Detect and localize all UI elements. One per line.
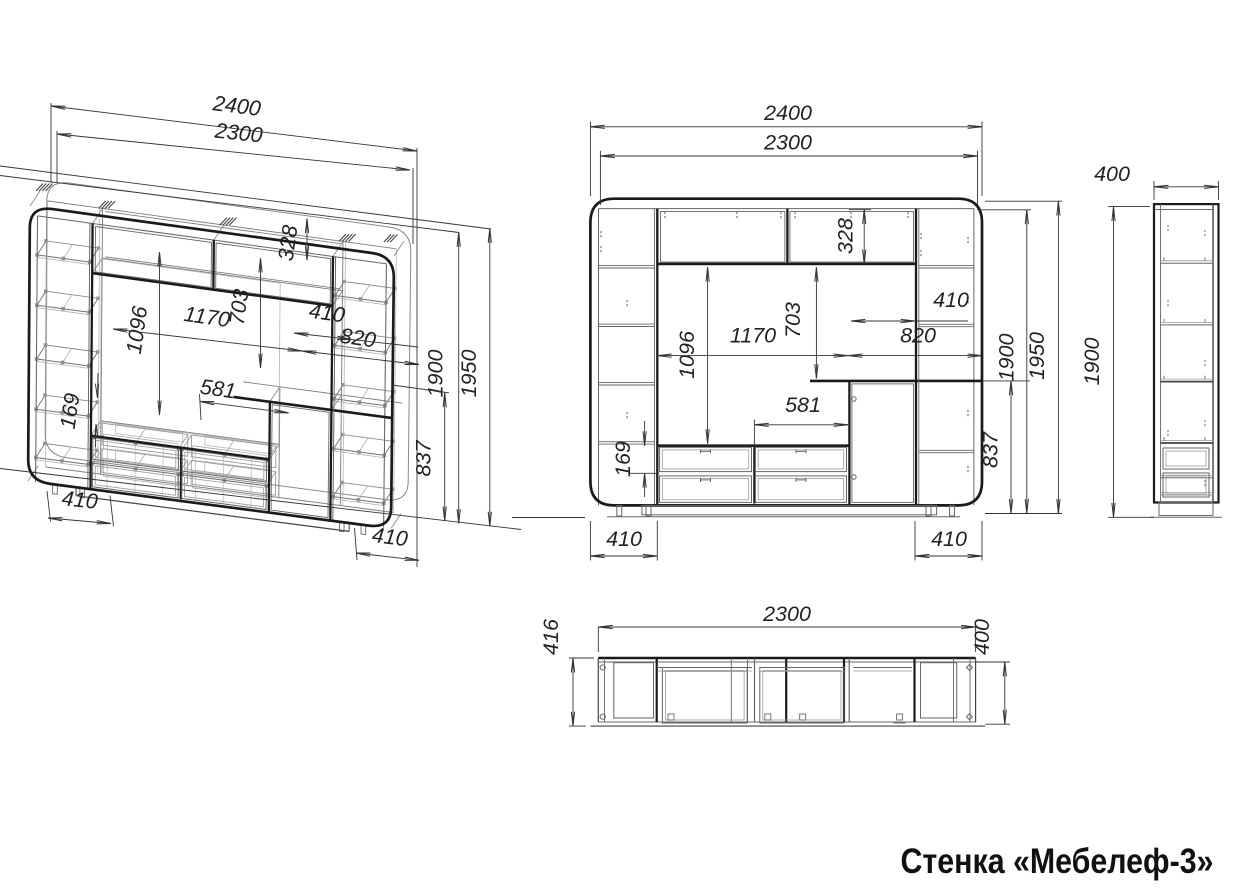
svg-text:410: 410 [606,527,642,551]
svg-text:169: 169 [56,392,85,431]
svg-text:400: 400 [970,619,994,655]
svg-text:1170: 1170 [730,324,776,348]
svg-text:703: 703 [781,302,805,338]
svg-text:703: 703 [225,288,254,327]
svg-text:820: 820 [900,324,936,348]
svg-text:Стенка «Мебелеф-3»: Стенка «Мебелеф-3» [901,842,1214,881]
svg-text:1950: 1950 [1025,332,1049,380]
svg-text:1096: 1096 [675,331,699,379]
svg-text:581: 581 [199,375,238,404]
svg-text:416: 416 [539,619,563,655]
svg-text:410: 410 [931,527,967,551]
svg-text:169: 169 [611,441,635,477]
svg-text:837: 837 [979,431,1003,468]
svg-text:2300: 2300 [213,118,264,147]
svg-text:410: 410 [371,523,410,551]
svg-text:2300: 2300 [762,602,811,626]
svg-text:1900: 1900 [995,334,1019,382]
svg-text:328: 328 [274,224,303,263]
svg-text:2300: 2300 [763,130,812,154]
svg-text:410: 410 [308,299,347,328]
svg-text:581: 581 [785,393,821,417]
svg-text:1950: 1950 [457,350,481,398]
svg-text:400: 400 [1094,162,1130,186]
svg-text:1900: 1900 [1080,338,1104,386]
svg-text:837: 837 [412,440,436,477]
svg-text:410: 410 [61,486,99,514]
svg-text:2400: 2400 [763,101,812,125]
svg-text:410: 410 [933,288,969,312]
svg-text:328: 328 [834,218,858,254]
